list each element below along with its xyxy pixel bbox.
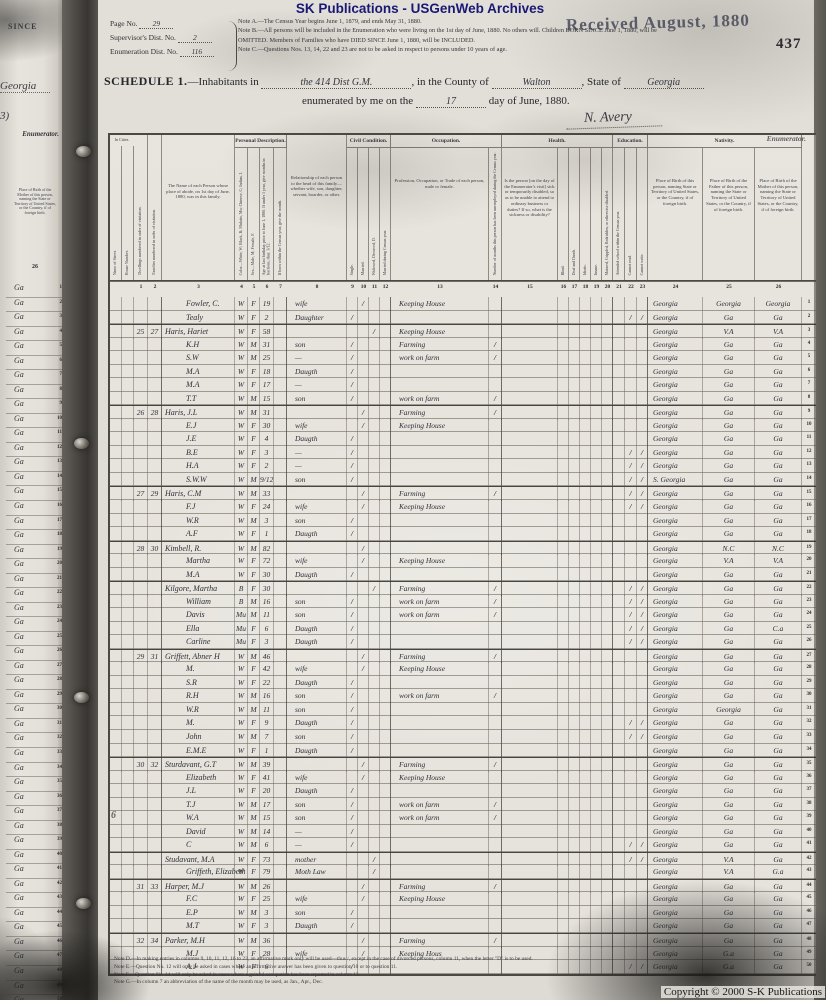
- cell-age: 30: [260, 582, 274, 596]
- cell-maimed: [602, 622, 613, 636]
- cell-cannot_write: [637, 744, 648, 758]
- cell-single: [347, 297, 358, 311]
- cell-cannot_read: [625, 378, 637, 392]
- cell-widowed: [369, 811, 380, 825]
- cell-age: 4: [260, 432, 274, 446]
- cell-color: W: [235, 919, 248, 933]
- cell-cannot_read: [625, 338, 637, 352]
- cell-name: W.A: [162, 811, 235, 825]
- cell-family: 29: [148, 487, 162, 501]
- cell-sex: M: [248, 730, 260, 744]
- cell-married: /: [358, 758, 369, 772]
- cell-street: [110, 514, 122, 528]
- cell-blind: [558, 622, 569, 636]
- cell-dwelling: 29: [134, 650, 148, 664]
- cell-widowed: [369, 500, 380, 514]
- cell-street: [110, 880, 122, 894]
- cell-unemployed: [489, 325, 502, 339]
- cell-pof: Ga: [703, 432, 755, 446]
- cell-sex: M: [248, 473, 260, 487]
- cell-sickness: [502, 487, 558, 501]
- cell-unemployed: [489, 568, 502, 582]
- cell-unemployed: [489, 744, 502, 758]
- cell-pob: Georgia: [648, 622, 703, 636]
- cell-cannot_write: /: [637, 635, 648, 649]
- cell-married: [358, 811, 369, 825]
- cell-house: [122, 662, 134, 676]
- cell-sickness: [502, 771, 558, 785]
- cell-married: /: [358, 500, 369, 514]
- cell-idiotic: [580, 771, 591, 785]
- cell-street: [110, 676, 122, 690]
- facing-fragment: 3): [0, 110, 9, 122]
- column-number: 5: [248, 284, 260, 290]
- cell-school: [613, 730, 625, 744]
- cell-sickness: [502, 595, 558, 609]
- cell-married: [358, 514, 369, 528]
- cell-sickness: [502, 798, 558, 812]
- schedule-title-line: SCHEDULE 1.—Inhabitants in the 414 Dist …: [104, 74, 808, 89]
- cell-unemployed: [489, 662, 502, 676]
- cell-pob: Georgia: [648, 838, 703, 852]
- cell-street: [110, 838, 122, 852]
- cell-sex: F: [248, 311, 260, 325]
- cell-name: Ella: [162, 622, 235, 636]
- cell-relationship: son: [287, 473, 347, 487]
- cell-married_cy: [380, 934, 391, 948]
- cell-sickness: [502, 853, 558, 867]
- cell-month: [274, 662, 287, 676]
- cell-married: [358, 919, 369, 933]
- cell-school: [613, 744, 625, 758]
- cell-age: 73: [260, 853, 274, 867]
- cell-single: [347, 853, 358, 867]
- cell-street: [110, 365, 122, 379]
- cell-married: [358, 838, 369, 852]
- cell-pof: Ga: [703, 419, 755, 433]
- cell-cannot_read: /: [625, 730, 637, 744]
- column-header-occupation: Profession, Occupation, or Trade of each…: [391, 148, 489, 280]
- cell-name: E.P: [162, 906, 235, 920]
- cell-married_cy: [380, 554, 391, 568]
- cell-dwelling: [134, 554, 148, 568]
- cell-cannot_write: [637, 676, 648, 690]
- cell-pof: Georgia: [703, 297, 755, 311]
- cell-unemployed: /: [489, 880, 502, 894]
- cell-idiotic: [580, 650, 591, 664]
- cell-occupation: [391, 311, 489, 325]
- cell-widowed: [369, 608, 380, 622]
- column-number: 18: [580, 284, 591, 290]
- cell-month: [274, 771, 287, 785]
- cell-dwelling: [134, 703, 148, 717]
- column-header-text: Attended school within the Census year.: [616, 150, 620, 275]
- facing-row: Ga29: [6, 690, 62, 705]
- cell-married_cy: [380, 919, 391, 933]
- cell-age: 72: [260, 554, 274, 568]
- cell-unemployed: [489, 311, 502, 325]
- cell-street: [110, 853, 122, 867]
- cell-color: W: [235, 325, 248, 339]
- cell-pob: Georgia: [648, 514, 703, 528]
- cell-blind: [558, 311, 569, 325]
- cell-deaf: [569, 487, 580, 501]
- cell-single: [347, 419, 358, 433]
- cell-cannot_write: /: [637, 582, 648, 596]
- cell-color: W: [235, 838, 248, 852]
- cell-month: [274, 500, 287, 514]
- cell-sex: F: [248, 500, 260, 514]
- cell-age: 25: [260, 351, 274, 365]
- column-numbers-row: 1234567891011121314151617181920212223242…: [110, 281, 816, 297]
- cell-unemployed: [489, 703, 502, 717]
- cell-color: W: [235, 716, 248, 730]
- cell-pof: Ga: [703, 568, 755, 582]
- cell-relationship: son: [287, 595, 347, 609]
- cell-color: W: [235, 446, 248, 460]
- cell-month: [274, 608, 287, 622]
- cell-unemployed: [489, 892, 502, 906]
- cell-married_cy: [380, 419, 391, 433]
- cell-sickness: [502, 568, 558, 582]
- cell-blind: [558, 392, 569, 406]
- cell-color: W: [235, 297, 248, 311]
- cell-dwelling: 26: [134, 406, 148, 420]
- cell-relationship: Daugth: [287, 527, 347, 541]
- cell-widowed: [369, 514, 380, 528]
- facing-ga-value: Ga: [14, 356, 24, 365]
- cell-month: [274, 811, 287, 825]
- cell-street: [110, 527, 122, 541]
- table-row: M.WF9Daugth///GeorgiaGaGa32: [110, 716, 816, 730]
- cell-relationship: wife: [287, 419, 347, 433]
- cell-deaf: [569, 635, 580, 649]
- column-number: 4: [235, 284, 248, 290]
- cell-family: 27: [148, 325, 162, 339]
- cell-dwelling: [134, 378, 148, 392]
- cell-sickness: [502, 934, 558, 948]
- cell-relationship: wife: [287, 554, 347, 568]
- cell-idiotic: [580, 865, 591, 879]
- cell-relationship: [287, 758, 347, 772]
- cell-blind: [558, 716, 569, 730]
- facing-ga-value: Ga: [14, 530, 24, 539]
- cell-deaf: [569, 865, 580, 879]
- cell-relationship: son: [287, 798, 347, 812]
- cell-name: T.J: [162, 798, 235, 812]
- cell-single: /: [347, 311, 358, 325]
- cell-occupation: work on farm: [391, 798, 489, 812]
- cell-dwelling: [134, 771, 148, 785]
- cell-cannot_read: [625, 744, 637, 758]
- facing-ga-value: Ga: [14, 632, 24, 641]
- cell-house: [122, 514, 134, 528]
- facing-row: Ga2: [6, 298, 62, 313]
- facing-row: Ga17: [6, 516, 62, 531]
- cell-cannot_read: [625, 798, 637, 812]
- cell-street: [110, 568, 122, 582]
- cell-occupation: work on farm: [391, 351, 489, 365]
- facing-col26-number: 26: [14, 264, 56, 270]
- cell-school: [613, 446, 625, 460]
- cell-month: [274, 635, 287, 649]
- cell-sickness: [502, 338, 558, 352]
- facing-row: Ga24: [6, 617, 62, 632]
- cell-blind: [558, 338, 569, 352]
- cell-blind: [558, 703, 569, 717]
- cell-relationship: [287, 880, 347, 894]
- cell-family: [148, 514, 162, 528]
- cell-single: /: [347, 919, 358, 933]
- cell-occupation: work on farm: [391, 689, 489, 703]
- cell-married: [358, 378, 369, 392]
- cell-house: [122, 838, 134, 852]
- cell-pom: Ga: [755, 608, 802, 622]
- cell-widowed: [369, 934, 380, 948]
- facing-row: Ga10: [6, 414, 62, 429]
- cell-deaf: [569, 325, 580, 339]
- cell-insane: [591, 406, 602, 420]
- cell-occupation: [391, 838, 489, 852]
- column-header-text: Cannot write.: [640, 150, 644, 275]
- cell-dwelling: [134, 784, 148, 798]
- cell-married_cy: [380, 582, 391, 596]
- cell-cannot_read: [625, 771, 637, 785]
- cell-deaf: [569, 338, 580, 352]
- cell-unemployed: [489, 473, 502, 487]
- cell-color: W: [235, 703, 248, 717]
- cell-cannot_write: [637, 825, 648, 839]
- cell-cannot_write: /: [637, 838, 648, 852]
- cell-deaf: [569, 459, 580, 473]
- cell-sickness: [502, 527, 558, 541]
- cell-married: [358, 365, 369, 379]
- cell-age: 79: [260, 865, 274, 879]
- facing-row: Ga20: [6, 559, 62, 574]
- cell-deaf: [569, 880, 580, 894]
- cell-pom: Ga: [755, 689, 802, 703]
- cell-occupation: [391, 365, 489, 379]
- cell-idiotic: [580, 311, 591, 325]
- table-row: M.AWF18Daugth/GeorgiaGaGa6: [110, 365, 816, 379]
- facing-ga-value: Ga: [14, 661, 24, 670]
- cell-widowed: [369, 622, 380, 636]
- cell-cannot_write: [637, 514, 648, 528]
- cell-month: [274, 338, 287, 352]
- cell-pof: V.A: [703, 853, 755, 867]
- cell-single: [347, 500, 358, 514]
- cell-insane: [591, 568, 602, 582]
- cell-age: 30: [260, 568, 274, 582]
- cell-pom: V.A: [755, 325, 802, 339]
- cell-dwelling: [134, 568, 148, 582]
- facing-page-strip: SINCE Georgia 3) Enumerator. Place of Bi…: [0, 0, 62, 1000]
- cell-married_cy: [380, 744, 391, 758]
- cell-married: [358, 798, 369, 812]
- cell-pom: Ga: [755, 459, 802, 473]
- cell-married: [358, 730, 369, 744]
- cell-school: [613, 689, 625, 703]
- cell-relationship: Daugth: [287, 432, 347, 446]
- cell-married: /: [358, 297, 369, 311]
- cell-deaf: [569, 650, 580, 664]
- cell-name: Davis: [162, 608, 235, 622]
- column-header-text: Cannot read.: [628, 150, 632, 275]
- facing-ga-value: Ga: [14, 864, 24, 873]
- cell-unemployed: [489, 865, 502, 879]
- column-number: 2: [148, 284, 162, 290]
- cell-age: 46: [260, 650, 274, 664]
- cell-age: 15: [260, 392, 274, 406]
- cell-unemployed: /: [489, 351, 502, 365]
- cell-pom: Ga: [755, 446, 802, 460]
- cell-married: [358, 527, 369, 541]
- cell-pom: Ga: [755, 473, 802, 487]
- column-header-pof: Place of Birth of the Father of this per…: [703, 148, 755, 280]
- cell-widowed: [369, 919, 380, 933]
- facing-row: Ga34: [6, 763, 62, 778]
- cell-dwelling: [134, 500, 148, 514]
- cell-pob: Georgia: [648, 311, 703, 325]
- cell-family: [148, 608, 162, 622]
- cell-sickness: [502, 703, 558, 717]
- cell-pom: Ga: [755, 650, 802, 664]
- cell-relationship: Daugth: [287, 919, 347, 933]
- cell-name: William: [162, 595, 235, 609]
- cell-street: [110, 406, 122, 420]
- cell-pof: Ga: [703, 622, 755, 636]
- table-row: M.AWF30Daugth/GeorgiaGaGa21: [110, 568, 816, 582]
- cell-idiotic: [580, 838, 591, 852]
- cell-month: [274, 514, 287, 528]
- cell-cannot_write: [637, 703, 648, 717]
- cell-cannot_write: [637, 527, 648, 541]
- cell-maimed: [602, 853, 613, 867]
- cell-blind: [558, 446, 569, 460]
- cell-married: /: [358, 406, 369, 420]
- facing-ga-value: Ga: [14, 501, 24, 510]
- cell-maimed: [602, 758, 613, 772]
- column-header-idiotic: Idiotic.: [580, 148, 591, 280]
- cell-married_cy: [380, 527, 391, 541]
- facing-row: Ga37: [6, 806, 62, 821]
- cell-sex: M: [248, 811, 260, 825]
- cell-color: W: [235, 853, 248, 867]
- cell-cannot_write: /: [637, 730, 648, 744]
- cell-pof: V.A: [703, 325, 755, 339]
- cell-sickness: [502, 880, 558, 894]
- cell-dwelling: [134, 459, 148, 473]
- cell-deaf: [569, 784, 580, 798]
- cell-month: [274, 527, 287, 541]
- cell-deaf: [569, 514, 580, 528]
- cell-married: [358, 622, 369, 636]
- cell-name: M.T: [162, 919, 235, 933]
- cell-sickness: [502, 514, 558, 528]
- cell-married_cy: [380, 798, 391, 812]
- cell-occupation: [391, 432, 489, 446]
- cell-idiotic: [580, 811, 591, 825]
- enum-dist-label: Enumeration Dist. No.: [110, 47, 178, 56]
- cell-month: [274, 703, 287, 717]
- column-header-text: Dwellings numbered in order of visitatio…: [138, 137, 142, 275]
- cell-house: [122, 608, 134, 622]
- cell-sickness: [502, 297, 558, 311]
- cell-insane: [591, 608, 602, 622]
- cell-single: [347, 406, 358, 420]
- table-row: Studavant, M.AWF73mother///GeorgiaV.AGa4…: [110, 852, 816, 866]
- cell-cannot_write: [637, 554, 648, 568]
- cell-pof: Ga: [703, 716, 755, 730]
- cell-insane: [591, 392, 602, 406]
- cell-pof: Ga: [703, 365, 755, 379]
- cell-sickness: [502, 716, 558, 730]
- cell-school: [613, 703, 625, 717]
- cell-sickness: [502, 542, 558, 556]
- cell-pom: Ga: [755, 811, 802, 825]
- facing-row: Ga38: [6, 821, 62, 836]
- cell-unemployed: /: [489, 811, 502, 825]
- column-number: 9: [347, 284, 358, 290]
- cell-insane: [591, 676, 602, 690]
- cell-blind: [558, 608, 569, 622]
- cell-blind: [558, 568, 569, 582]
- facing-ga-value: Ga: [14, 777, 24, 786]
- cell-pom: Ga: [755, 406, 802, 420]
- county-value: Walton: [492, 77, 582, 89]
- cell-sex: F: [248, 432, 260, 446]
- cell-street: [110, 582, 122, 596]
- cell-unemployed: /: [489, 487, 502, 501]
- cell-relationship: wife: [287, 662, 347, 676]
- cell-maimed: [602, 338, 613, 352]
- cell-dwelling: 28: [134, 542, 148, 556]
- cell-age: 3: [260, 514, 274, 528]
- cell-relationship: wife: [287, 500, 347, 514]
- facing-ga-value: Ga: [14, 298, 24, 307]
- cell-house: [122, 811, 134, 825]
- cell-insane: [591, 365, 602, 379]
- cell-relationship: Daugth: [287, 784, 347, 798]
- cell-pob: Georgia: [648, 811, 703, 825]
- census-form-page: Page No. 29 Supervisor's Dist. No. 2 Enu…: [98, 0, 814, 1000]
- cell-school: [613, 811, 625, 825]
- cell-dwelling: [134, 716, 148, 730]
- cell-color: W: [235, 459, 248, 473]
- cell-sex: M: [248, 838, 260, 852]
- cell-dwelling: [134, 811, 148, 825]
- cell-single: /: [347, 703, 358, 717]
- facing-ga-value: Ga: [14, 559, 24, 568]
- cell-name: Haris, Hariet: [162, 325, 235, 339]
- cell-maimed: [602, 392, 613, 406]
- cell-pof: Ga: [703, 527, 755, 541]
- facing-ga-value: Ga: [14, 443, 24, 452]
- cell-cannot_write: /: [637, 311, 648, 325]
- facing-row: Ga41: [6, 864, 62, 879]
- cell-dwelling: [134, 906, 148, 920]
- cell-insane: [591, 297, 602, 311]
- cell-street: [110, 311, 122, 325]
- facing-ga-value: Ga: [14, 719, 24, 728]
- cell-insane: [591, 338, 602, 352]
- column-header-sex: Sex—Male, M; Female, F.: [248, 148, 260, 280]
- cell-cannot_write: [637, 325, 648, 339]
- cell-deaf: [569, 811, 580, 825]
- cell-month: [274, 365, 287, 379]
- cell-street: [110, 392, 122, 406]
- cell-family: [148, 582, 162, 596]
